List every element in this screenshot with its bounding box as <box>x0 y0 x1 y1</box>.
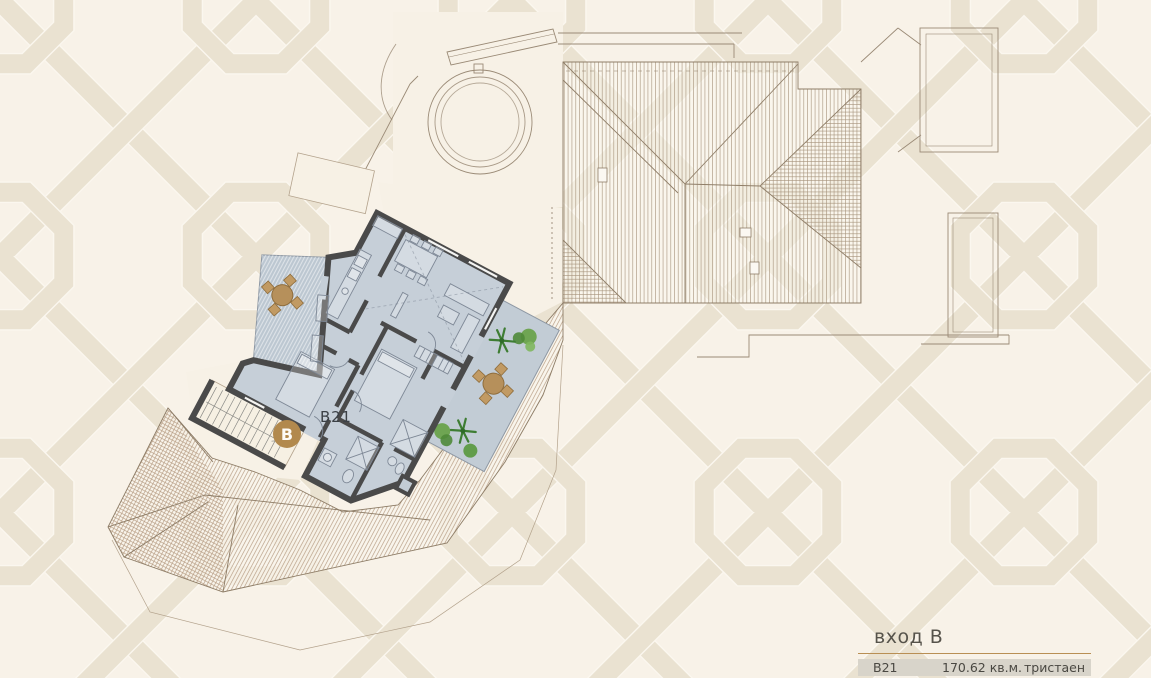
legend-rule <box>858 653 1091 654</box>
unit-info-row[interactable]: B21 170.62 кв.м. тристаен <box>858 659 1091 676</box>
wall-jut <box>396 476 415 495</box>
unit-type: тристаен <box>1024 660 1085 676</box>
legend-title: вход В <box>874 626 1091 648</box>
unit-area: 170.62 кв.м. <box>942 660 1022 676</box>
floorplan-canvas: B B21 вход В B21 170.62 кв.м. тристаен <box>0 0 1151 678</box>
entrance-b-badge[interactable]: B <box>273 420 301 448</box>
legend: вход В B21 170.62 кв.м. тристаен <box>858 626 1091 676</box>
roof-top-right <box>563 62 861 303</box>
unit-id: B21 <box>873 660 897 676</box>
unit-label: B21 <box>320 408 352 426</box>
badge-letter: B <box>281 425 293 444</box>
